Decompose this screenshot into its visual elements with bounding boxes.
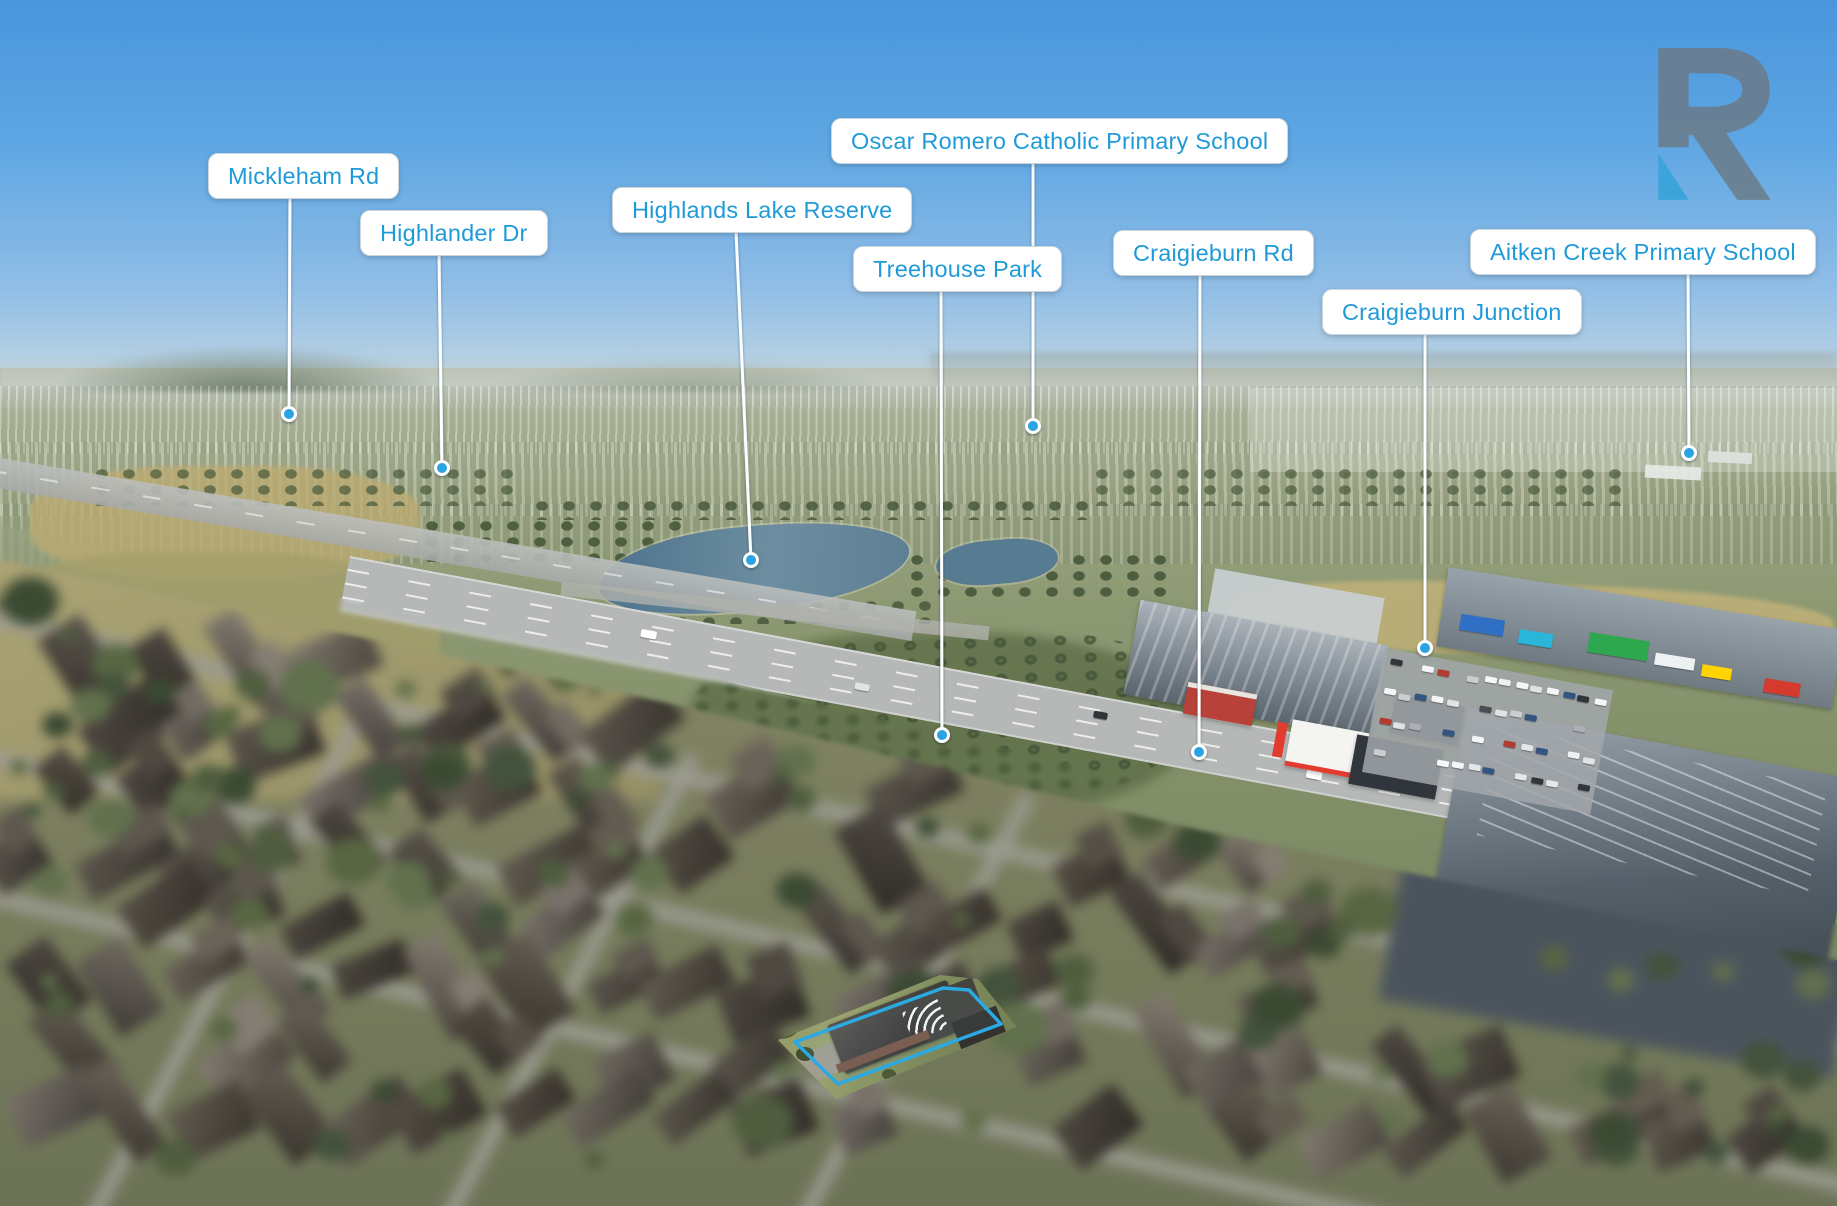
leader-line-craigieburn-rd	[1199, 275, 1200, 752]
label-highlander-dr: Highlander Dr	[360, 210, 548, 256]
leader-line-highlands-lake-reserve	[736, 232, 751, 560]
leader-line-aitken-creek-school	[1688, 274, 1689, 453]
map-marker-craigieburn-junction	[1419, 642, 1432, 655]
map-markers	[283, 408, 1696, 759]
leader-line-treehouse-park	[941, 291, 942, 735]
label-oscar-romero-school: Oscar Romero Catholic Primary School	[831, 118, 1288, 164]
map-marker-craigieburn-rd	[1193, 746, 1206, 759]
map-marker-highlander-dr	[436, 462, 449, 475]
map-marker-oscar-romero-school	[1027, 420, 1040, 433]
aerial-photo-scene: Mickleham Rd Highlander Dr Highlands Lak…	[0, 0, 1837, 1206]
label-highlands-lake-reserve: Highlands Lake Reserve	[612, 187, 912, 233]
map-marker-mickleham-rd	[283, 408, 296, 421]
logo-accent-triangle	[1658, 153, 1688, 200]
label-aitken-creek-school: Aitken Creek Primary School	[1470, 229, 1816, 275]
agency-logo-r	[1650, 48, 1776, 206]
label-craigieburn-junction: Craigieburn Junction	[1322, 289, 1582, 335]
property-boundary-outline	[795, 988, 1001, 1084]
map-marker-highlands-lake-reserve	[745, 554, 758, 567]
leader-line-highlander-dr	[439, 255, 442, 468]
label-mickleham-rd: Mickleham Rd	[208, 153, 399, 199]
leader-line-mickleham-rd	[289, 198, 290, 414]
logo-letter-gray	[1658, 48, 1770, 200]
map-marker-treehouse-park	[936, 729, 949, 742]
label-craigieburn-rd: Craigieburn Rd	[1113, 230, 1314, 276]
label-treehouse-park: Treehouse Park	[853, 246, 1062, 292]
map-marker-aitken-creek-school	[1683, 447, 1696, 460]
